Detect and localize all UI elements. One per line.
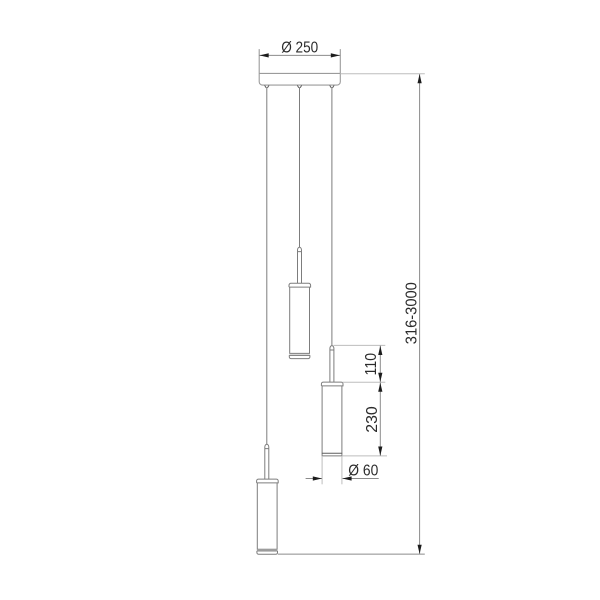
svg-text:110: 110 [363,353,380,376]
svg-text:Ø 60: Ø 60 [348,463,378,480]
svg-text:316-3000: 316-3000 [404,282,421,344]
svg-text:230: 230 [364,406,381,433]
svg-text:Ø 250: Ø 250 [281,39,318,56]
